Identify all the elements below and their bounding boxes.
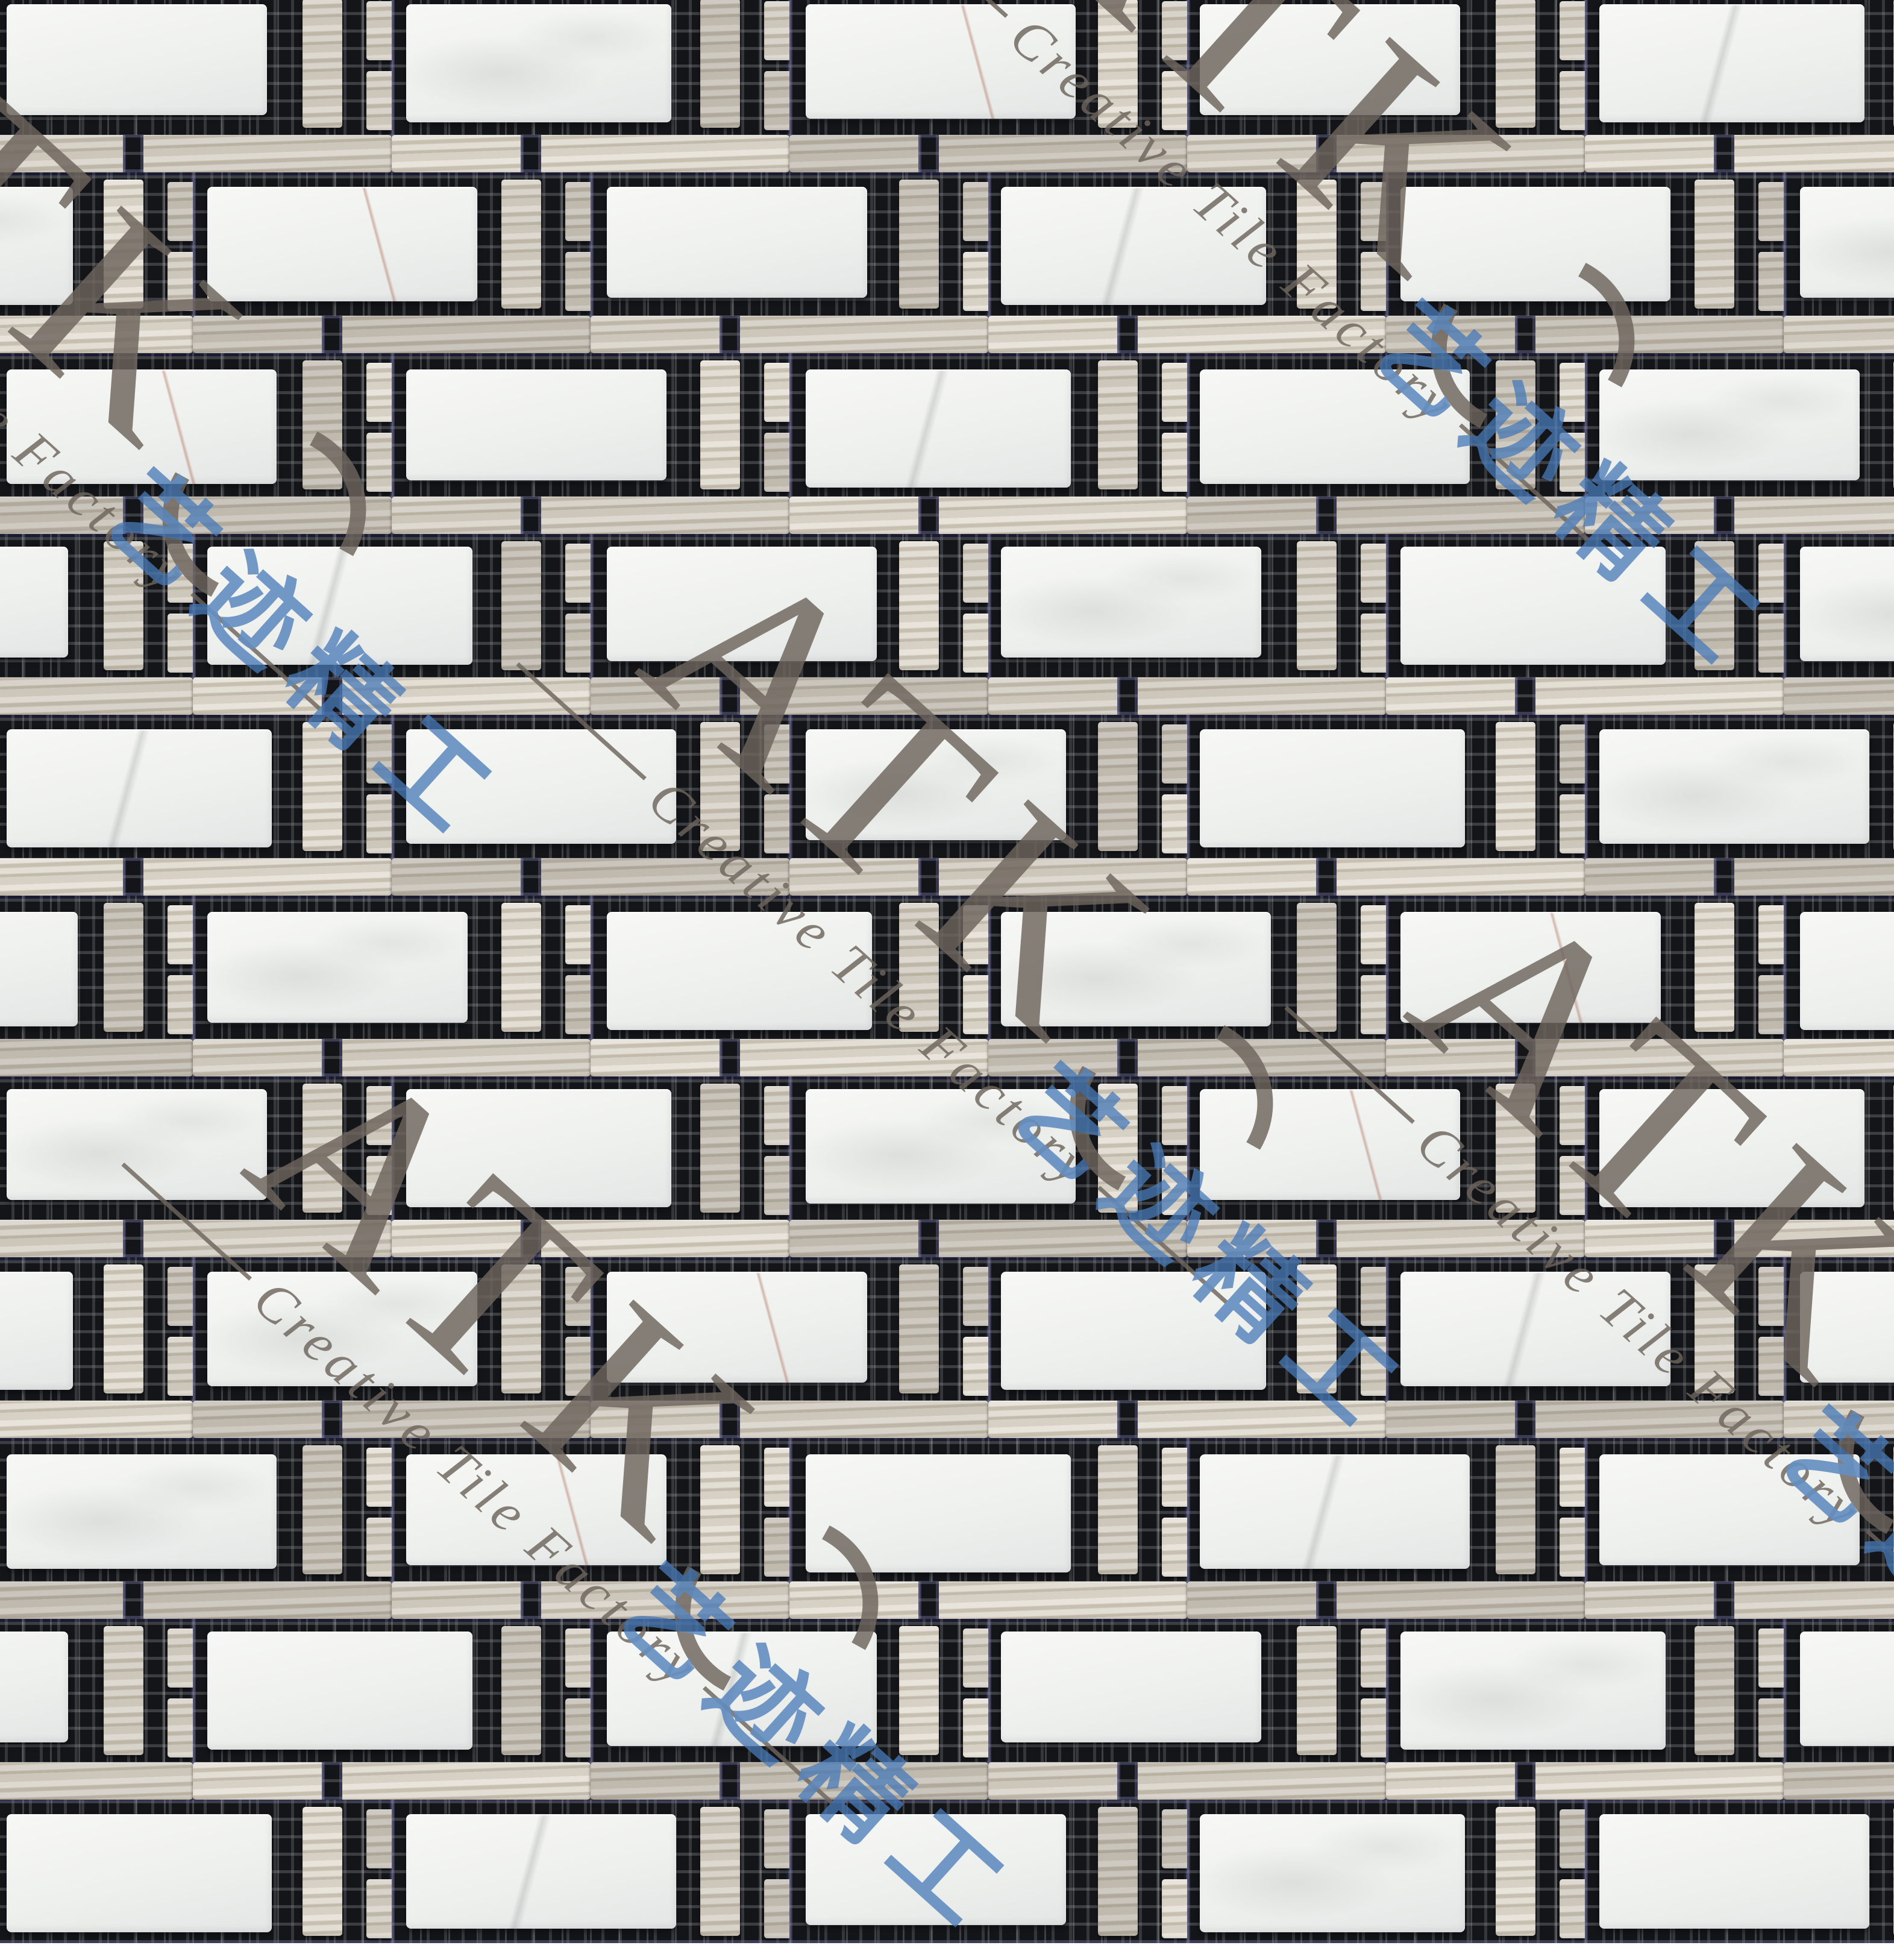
frame-strip: [899, 541, 939, 670]
grout-slot: [1117, 677, 1138, 715]
frame-strip: [1098, 1807, 1138, 1936]
marble-brick: [1200, 729, 1465, 847]
frame-band: [392, 135, 789, 172]
frame-strip: [1496, 1084, 1535, 1213]
frame-band: [0, 1220, 392, 1257]
marble-brick: [1001, 912, 1271, 1026]
frame-strip: [501, 903, 541, 1032]
frame-strip: [1098, 1084, 1138, 1213]
frame-strip: [104, 180, 143, 309]
frame-band: [1784, 677, 1894, 715]
frame-band: [789, 1220, 1187, 1257]
grout-slot: [1515, 1762, 1535, 1800]
grout-slot: [918, 1582, 939, 1619]
grout-slot: [322, 677, 342, 715]
marble-brick: [406, 4, 671, 122]
frame-strip: [1098, 360, 1138, 489]
frame-band: [789, 135, 1187, 172]
grout-slot: [322, 1039, 342, 1076]
marble-brick: [7, 1089, 267, 1200]
frame-band: [988, 316, 1386, 353]
frame-strip: [303, 722, 342, 851]
frame-band: [1585, 1220, 1894, 1257]
frame-band: [1187, 1582, 1585, 1619]
marble-brick: [806, 4, 1076, 119]
frame-band: [1386, 677, 1784, 715]
marble-brick: [607, 547, 877, 661]
marble-brick: [1599, 1089, 1864, 1207]
marble-brick: [207, 1272, 477, 1386]
grout-slot: [1316, 858, 1337, 896]
frame-band: [0, 135, 392, 172]
frame-band: [1187, 1220, 1585, 1257]
grout-slot: [1714, 1582, 1734, 1619]
frame-strip: [1496, 1445, 1535, 1574]
frame-band: [1386, 1401, 1784, 1438]
grout-slot: [1316, 1582, 1337, 1619]
frame-strip: [1496, 0, 1535, 128]
frame-strip: [1496, 1807, 1535, 1936]
grout-slot: [720, 1762, 740, 1800]
marble-brick: [406, 1454, 666, 1565]
frame-band: [0, 1582, 392, 1619]
frame-band: [1784, 1039, 1894, 1076]
product-photo: ATK 艺迹精工 Creative Tile Factory ATK 艺迹精工 …: [0, 0, 1894, 1960]
frame-strip: [1695, 1264, 1734, 1393]
grout-slot: [720, 316, 740, 353]
grout-slot: [720, 1039, 740, 1076]
grout-slot: [1117, 316, 1138, 353]
frame-strip: [899, 1626, 939, 1755]
marble-brick: [406, 1089, 671, 1207]
marble-brick: [1400, 187, 1670, 301]
marble-brick: [1599, 1814, 1869, 1929]
frame-strip: [1098, 1445, 1138, 1574]
frame-band: [988, 1401, 1386, 1438]
marble-brick: [7, 1814, 272, 1932]
frame-strip: [1098, 722, 1138, 851]
marble-brick: [1400, 1632, 1666, 1750]
marble-brick: [7, 4, 267, 115]
frame-strip: [1297, 1264, 1337, 1393]
marble-brick: [806, 369, 1071, 488]
grout-slot: [1714, 1220, 1734, 1257]
frame-band: [1585, 858, 1894, 896]
grout-slot: [1714, 858, 1734, 896]
marble-brick: [1200, 1089, 1460, 1200]
grout-slot: [918, 135, 939, 172]
frame-band: [193, 1039, 591, 1076]
frame-strip: [1098, 0, 1138, 128]
marble-brick: [0, 1632, 68, 1742]
frame-strip: [700, 1807, 740, 1936]
frame-strip: [1297, 1626, 1337, 1755]
frame-strip: [700, 722, 740, 851]
grout-slot: [521, 497, 541, 534]
marble-brick: [806, 729, 1066, 840]
frame-strip: [1695, 903, 1734, 1032]
grout-slot: [918, 497, 939, 534]
frame-band: [193, 1762, 591, 1800]
frame-strip: [501, 1264, 541, 1393]
frame-band: [1784, 1401, 1894, 1438]
frame-band: [988, 677, 1386, 715]
grout-slot: [1316, 1220, 1337, 1257]
grout-slot: [918, 858, 939, 896]
frame-band: [193, 316, 591, 353]
frame-band: [1187, 497, 1585, 534]
marble-brick: [207, 1632, 472, 1750]
marble-brick: [1001, 1632, 1261, 1742]
grout-slot: [123, 1220, 143, 1257]
marble-brick: [0, 912, 78, 1026]
frame-strip: [899, 903, 939, 1032]
grout-slot: [322, 1401, 342, 1438]
frame-strip: [1297, 541, 1337, 670]
grout-slot: [1316, 497, 1337, 534]
grout-slot: [1515, 1039, 1535, 1076]
frame-band: [789, 858, 1187, 896]
frame-band: [1784, 1762, 1894, 1800]
grout-slot: [521, 135, 541, 172]
grout-slot: [720, 1401, 740, 1438]
marble-brick: [406, 369, 666, 480]
grout-slot: [1714, 135, 1734, 172]
frame-band: [392, 1582, 789, 1619]
marble-brick: [1001, 187, 1266, 305]
marble-brick: [1200, 1814, 1465, 1932]
frame-band: [1187, 135, 1585, 172]
grout-slot: [521, 1220, 541, 1257]
grout-slot: [521, 858, 541, 896]
grout-slot: [521, 1582, 541, 1619]
marble-brick: [1001, 1272, 1266, 1390]
grout-slot: [322, 316, 342, 353]
marble-brick: [806, 1814, 1066, 1925]
frame-strip: [1297, 180, 1337, 309]
frame-strip: [1695, 180, 1734, 309]
frame-band: [789, 497, 1187, 534]
frame-strip: [303, 0, 342, 128]
frame-strip: [1695, 1626, 1734, 1755]
frame-strip: [303, 1084, 342, 1213]
marble-brick: [607, 912, 872, 1030]
frame-band: [1386, 1762, 1784, 1800]
marble-brick: [7, 1454, 277, 1569]
frame-strip: [1496, 722, 1535, 851]
frame-band: [1585, 135, 1894, 172]
frame-band: [0, 1401, 193, 1438]
grout-slot: [1515, 316, 1535, 353]
marble-brick: [1400, 547, 1666, 665]
marble-brick: [1800, 1272, 1894, 1383]
frame-strip: [1297, 903, 1337, 1032]
grout-slot: [720, 677, 740, 715]
marble-brick: [1400, 912, 1661, 1023]
frame-strip: [303, 360, 342, 489]
marble-brick: [1400, 1272, 1670, 1386]
frame-band: [193, 677, 591, 715]
marble-brick: [1200, 4, 1460, 115]
marble-brick: [207, 547, 472, 665]
marble-brick: [1800, 912, 1894, 1030]
frame-band: [988, 1762, 1386, 1800]
frame-strip: [501, 180, 541, 309]
frame-strip: [104, 541, 143, 670]
mosaic-sheet: [0, 0, 1894, 1960]
grout-slot: [1515, 1401, 1535, 1438]
marble-brick: [207, 912, 468, 1023]
frame-strip: [1496, 360, 1535, 489]
grout-slot: [918, 1220, 939, 1257]
marble-brick: [1001, 547, 1261, 658]
marble-brick: [1800, 547, 1894, 661]
frame-band: [0, 1762, 193, 1800]
frame-strip: [700, 1445, 740, 1574]
marble-brick: [1599, 4, 1864, 122]
frame-band: [591, 1039, 988, 1076]
marble-brick: [1200, 1454, 1470, 1569]
frame-band: [0, 858, 392, 896]
marble-brick: [1599, 369, 1860, 480]
marble-brick: [1599, 1454, 1860, 1565]
frame-strip: [700, 0, 740, 128]
marble-brick: [0, 187, 73, 305]
frame-strip: [104, 1626, 143, 1755]
frame-band: [591, 316, 988, 353]
frame-band: [591, 677, 988, 715]
frame-band: [1187, 858, 1585, 896]
marble-brick: [806, 1454, 1071, 1572]
frame-strip: [501, 541, 541, 670]
grout-slot: [123, 497, 143, 534]
grout-slot: [123, 135, 143, 172]
frame-strip: [1695, 541, 1734, 670]
marble-brick: [0, 1272, 73, 1390]
marble-brick: [607, 1632, 877, 1746]
frame-strip: [899, 180, 939, 309]
frame-band: [392, 1220, 789, 1257]
grout-slot: [1714, 497, 1734, 534]
frame-strip: [700, 1084, 740, 1213]
frame-strip: [899, 1264, 939, 1393]
grout-slot: [1515, 677, 1535, 715]
frame-band: [0, 497, 392, 534]
grout-slot: [1117, 1762, 1138, 1800]
frame-band: [0, 316, 193, 353]
frame-band: [591, 1401, 988, 1438]
frame-strip: [700, 360, 740, 489]
frame-band: [1585, 1582, 1894, 1619]
marble-brick: [607, 1272, 867, 1383]
frame-strip: [303, 1445, 342, 1574]
marble-brick: [207, 187, 477, 301]
frame-band: [988, 1039, 1386, 1076]
grout-slot: [1117, 1039, 1138, 1076]
frame-band: [1386, 316, 1784, 353]
frame-band: [193, 1401, 591, 1438]
marble-brick: [406, 729, 676, 844]
marble-brick: [1200, 369, 1470, 484]
marble-brick: [1800, 1632, 1894, 1746]
marble-brick: [406, 1814, 676, 1929]
frame-band: [591, 1762, 988, 1800]
grout-slot: [1316, 135, 1337, 172]
frame-strip: [501, 1626, 541, 1755]
grout-slot: [123, 858, 143, 896]
frame-band: [0, 1039, 193, 1076]
frame-band: [1784, 316, 1894, 353]
frame-strip: [303, 1807, 342, 1936]
frame-band: [392, 858, 789, 896]
marble-brick: [0, 547, 68, 658]
frame-band: [1585, 497, 1894, 534]
grout-slot: [123, 1582, 143, 1619]
marble-brick: [1800, 187, 1894, 298]
frame-strip: [104, 1264, 143, 1393]
grout-slot: [322, 1762, 342, 1800]
marble-brick: [806, 1089, 1076, 1204]
frame-strip: [104, 903, 143, 1032]
marble-brick: [7, 729, 272, 847]
frame-band: [789, 1582, 1187, 1619]
frame-band: [0, 677, 193, 715]
grout-slot: [1117, 1401, 1138, 1438]
marble-brick: [607, 187, 867, 298]
marble-brick: [1599, 729, 1869, 844]
marble-brick: [7, 369, 277, 484]
frame-band: [392, 497, 789, 534]
frame-band: [1386, 1039, 1784, 1076]
